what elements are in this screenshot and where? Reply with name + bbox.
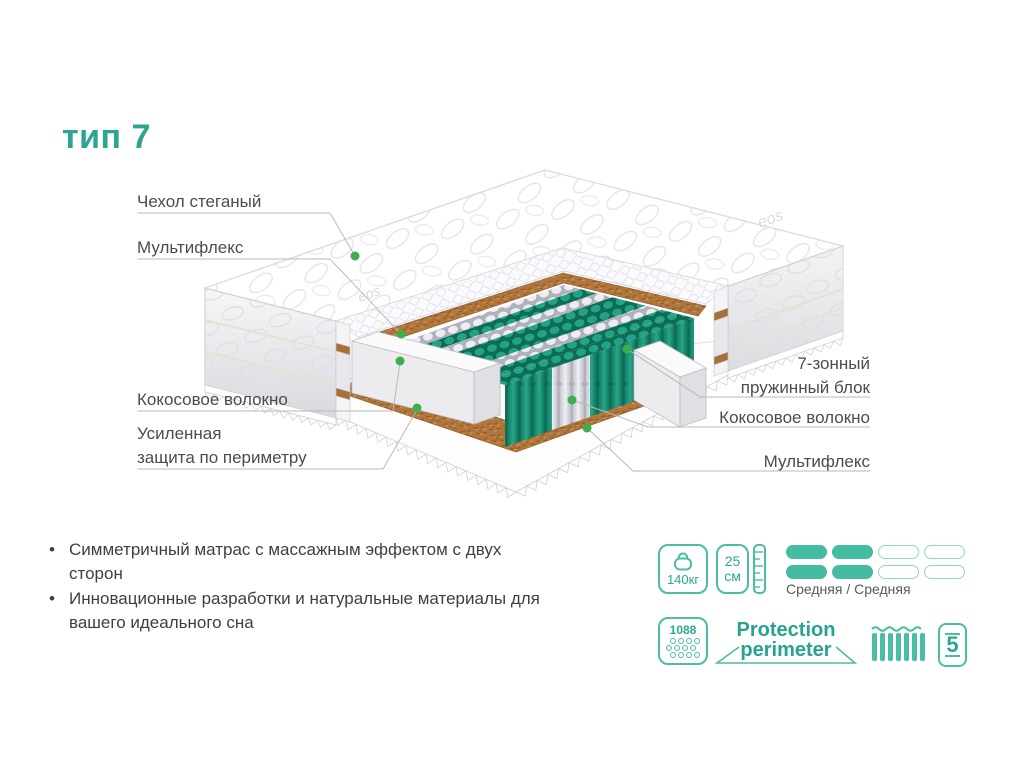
label-multiflex-top: Мультифлекс [137,236,243,260]
brand-watermark: eos [756,207,786,232]
bullet-icon: • [49,587,55,611]
feature-list: • Симметричный матрас с массажным эффект… [47,538,547,636]
max-weight-value: 140кг [667,572,699,587]
bullet-icon: • [49,538,55,562]
height-unit: см [724,569,741,584]
firmness-pill-empty [924,545,965,559]
height-value: 25 [725,554,741,569]
firmness-pill-empty [878,545,919,559]
warranty-bottom-line [945,655,960,657]
height-badge: 25 см [716,544,749,594]
label-cover: Чехол стеганый [137,190,261,214]
firmness-pill-filled [786,565,827,579]
mattress-infographic: eos eos тип 7 Чехол стеганый Мультифлекс… [0,0,1024,768]
springs-count-badge: 1088 [658,617,708,665]
protection-line2: perimeter [712,640,860,660]
firmness-pill-filled [832,565,873,579]
label-spring-block: 7-зонный пружинный блок [590,352,870,400]
label-coconut-right: Кокосовое волокно [590,406,870,430]
label-coconut-left: Кокосовое волокно [137,388,288,412]
springs-count-value: 1088 [670,624,697,637]
firmness-pill-empty [878,565,919,579]
firmness-pill-filled [786,545,827,559]
protection-line1: Protection [712,620,860,640]
firmness-label: Средняя / Средняя [786,581,911,597]
page-title: тип 7 [62,118,151,157]
firmness-pill-filled [832,545,873,559]
warranty-value: 5 [946,635,958,655]
max-weight-badge: 140кг [658,544,708,594]
independent-springs-icon [870,624,928,671]
label-multiflex-bottom: Мультифлекс [590,450,870,474]
warranty-badge: 5 [938,623,967,667]
feature-item: • Инновационные разработки и натуральные… [47,587,547,635]
label-perimeter: Усиленная защита по периметру [137,422,307,470]
firmness-pill-empty [924,565,965,579]
firmness-scale [786,545,965,585]
kettlebell-icon [671,551,695,571]
ruler-icon [753,544,766,594]
protection-perimeter-badge: Protection perimeter [712,620,860,668]
feature-item: • Симметричный матрас с массажным эффект… [47,538,547,586]
